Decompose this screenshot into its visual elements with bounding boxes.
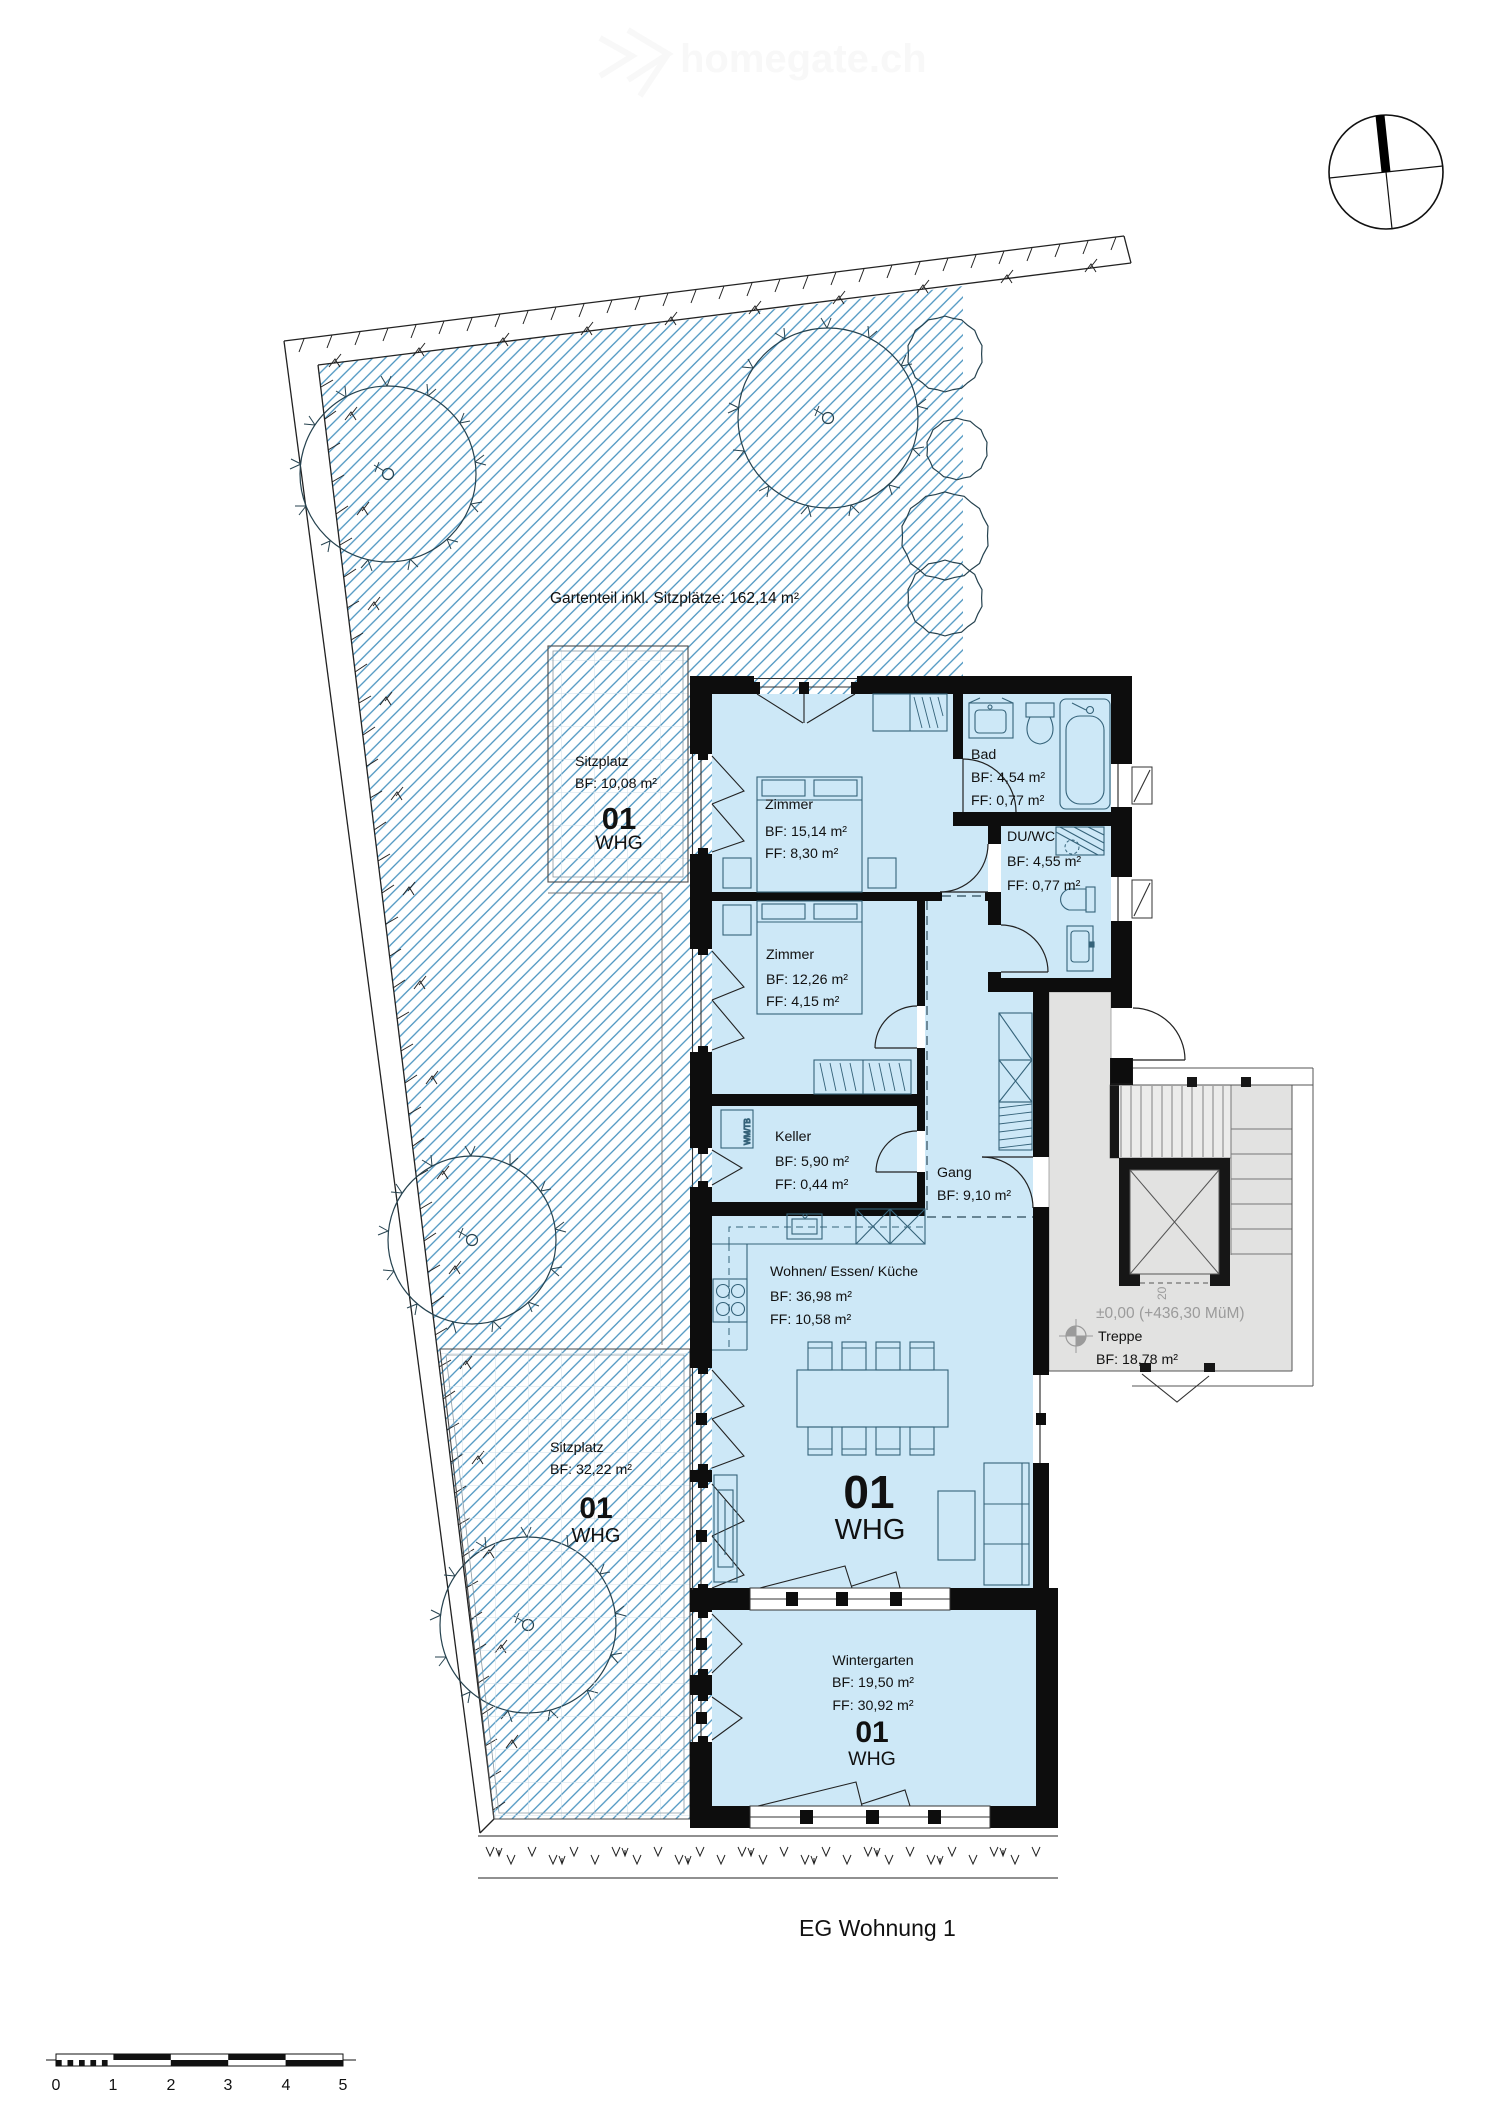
svg-text:Wohnen/ Essen/ Küche: Wohnen/ Essen/ Küche — [770, 1264, 918, 1280]
svg-text:BF: 9,10 m²: BF: 9,10 m² — [937, 1188, 1011, 1204]
svg-text:1: 1 — [109, 2077, 118, 2094]
svg-text:3: 3 — [224, 2077, 233, 2094]
svg-text:Gang: Gang — [937, 1165, 972, 1181]
svg-text:4: 4 — [282, 2077, 291, 2094]
svg-text:FF: 4,15 m²: FF: 4,15 m² — [766, 994, 840, 1010]
svg-text:Keller: Keller — [775, 1129, 812, 1145]
svg-text:BF: 19,50 m²: BF: 19,50 m² — [832, 1675, 914, 1691]
svg-text:FF: 30,92 m²: FF: 30,92 m² — [832, 1698, 913, 1714]
svg-text:5: 5 — [339, 2077, 348, 2094]
svg-text:01: 01 — [602, 801, 636, 836]
svg-text:BF: 5,90 m²: BF: 5,90 m² — [775, 1154, 849, 1170]
svg-text:FF: 8,30 m²: FF: 8,30 m² — [765, 846, 839, 862]
svg-text:01: 01 — [843, 1466, 894, 1518]
svg-text:WHG: WHG — [835, 1514, 906, 1546]
svg-text:WHG: WHG — [572, 1525, 621, 1547]
svg-text:01: 01 — [855, 1716, 888, 1749]
svg-text:homegate.ch: homegate.ch — [680, 37, 927, 81]
svg-text:WHG: WHG — [595, 832, 643, 854]
svg-text:2: 2 — [167, 2077, 176, 2094]
svg-text:Wintergarten: Wintergarten — [832, 1653, 913, 1669]
svg-text:Zimmer: Zimmer — [766, 947, 814, 963]
svg-text:BF: 4,55 m²: BF: 4,55 m² — [1007, 854, 1081, 870]
svg-text:20: 20 — [1155, 1286, 1169, 1300]
svg-text:FF: 10,58 m²: FF: 10,58 m² — [770, 1312, 851, 1328]
svg-text:BF: 4,54 m²: BF: 4,54 m² — [971, 770, 1045, 786]
svg-text:FF: 0,77 m²: FF: 0,77 m² — [1007, 878, 1081, 894]
svg-text:01: 01 — [579, 1492, 612, 1525]
svg-text:DU/WC: DU/WC — [1007, 829, 1055, 845]
svg-text:Sitzplatz: Sitzplatz — [575, 754, 629, 770]
svg-text:BF: 18,78 m²: BF: 18,78 m² — [1096, 1352, 1178, 1368]
svg-text:FF: 0,44 m²: FF: 0,44 m² — [775, 1177, 849, 1193]
svg-text:FF: 0,77 m²: FF: 0,77 m² — [971, 793, 1045, 809]
svg-text:Sitzplatz: Sitzplatz — [550, 1440, 604, 1456]
svg-text:WM/TB: WM/TB — [743, 1118, 752, 1145]
svg-text:Gartenteil inkl. Sitzplätze: 1: Gartenteil inkl. Sitzplätze: 162,14 m² — [550, 590, 799, 607]
svg-text:BF: 15,14 m²: BF: 15,14 m² — [765, 824, 847, 840]
svg-text:EG Wohnung 1: EG Wohnung 1 — [799, 1915, 956, 1941]
svg-text:Bad: Bad — [971, 747, 996, 763]
svg-text:BF: 10,08 m²: BF: 10,08 m² — [575, 776, 657, 792]
svg-text:Zimmer: Zimmer — [765, 797, 813, 813]
svg-text:WHG: WHG — [848, 1748, 896, 1770]
svg-text:BF: 12,26 m²: BF: 12,26 m² — [766, 972, 848, 988]
svg-text:Treppe: Treppe — [1098, 1329, 1143, 1345]
svg-text:BF: 32,22 m²: BF: 32,22 m² — [550, 1462, 632, 1478]
svg-text:BF: 36,98 m²: BF: 36,98 m² — [770, 1289, 852, 1305]
svg-text:±0,00 (+436,30 MüM): ±0,00 (+436,30 MüM) — [1096, 1305, 1245, 1322]
svg-text:0: 0 — [52, 2077, 61, 2094]
